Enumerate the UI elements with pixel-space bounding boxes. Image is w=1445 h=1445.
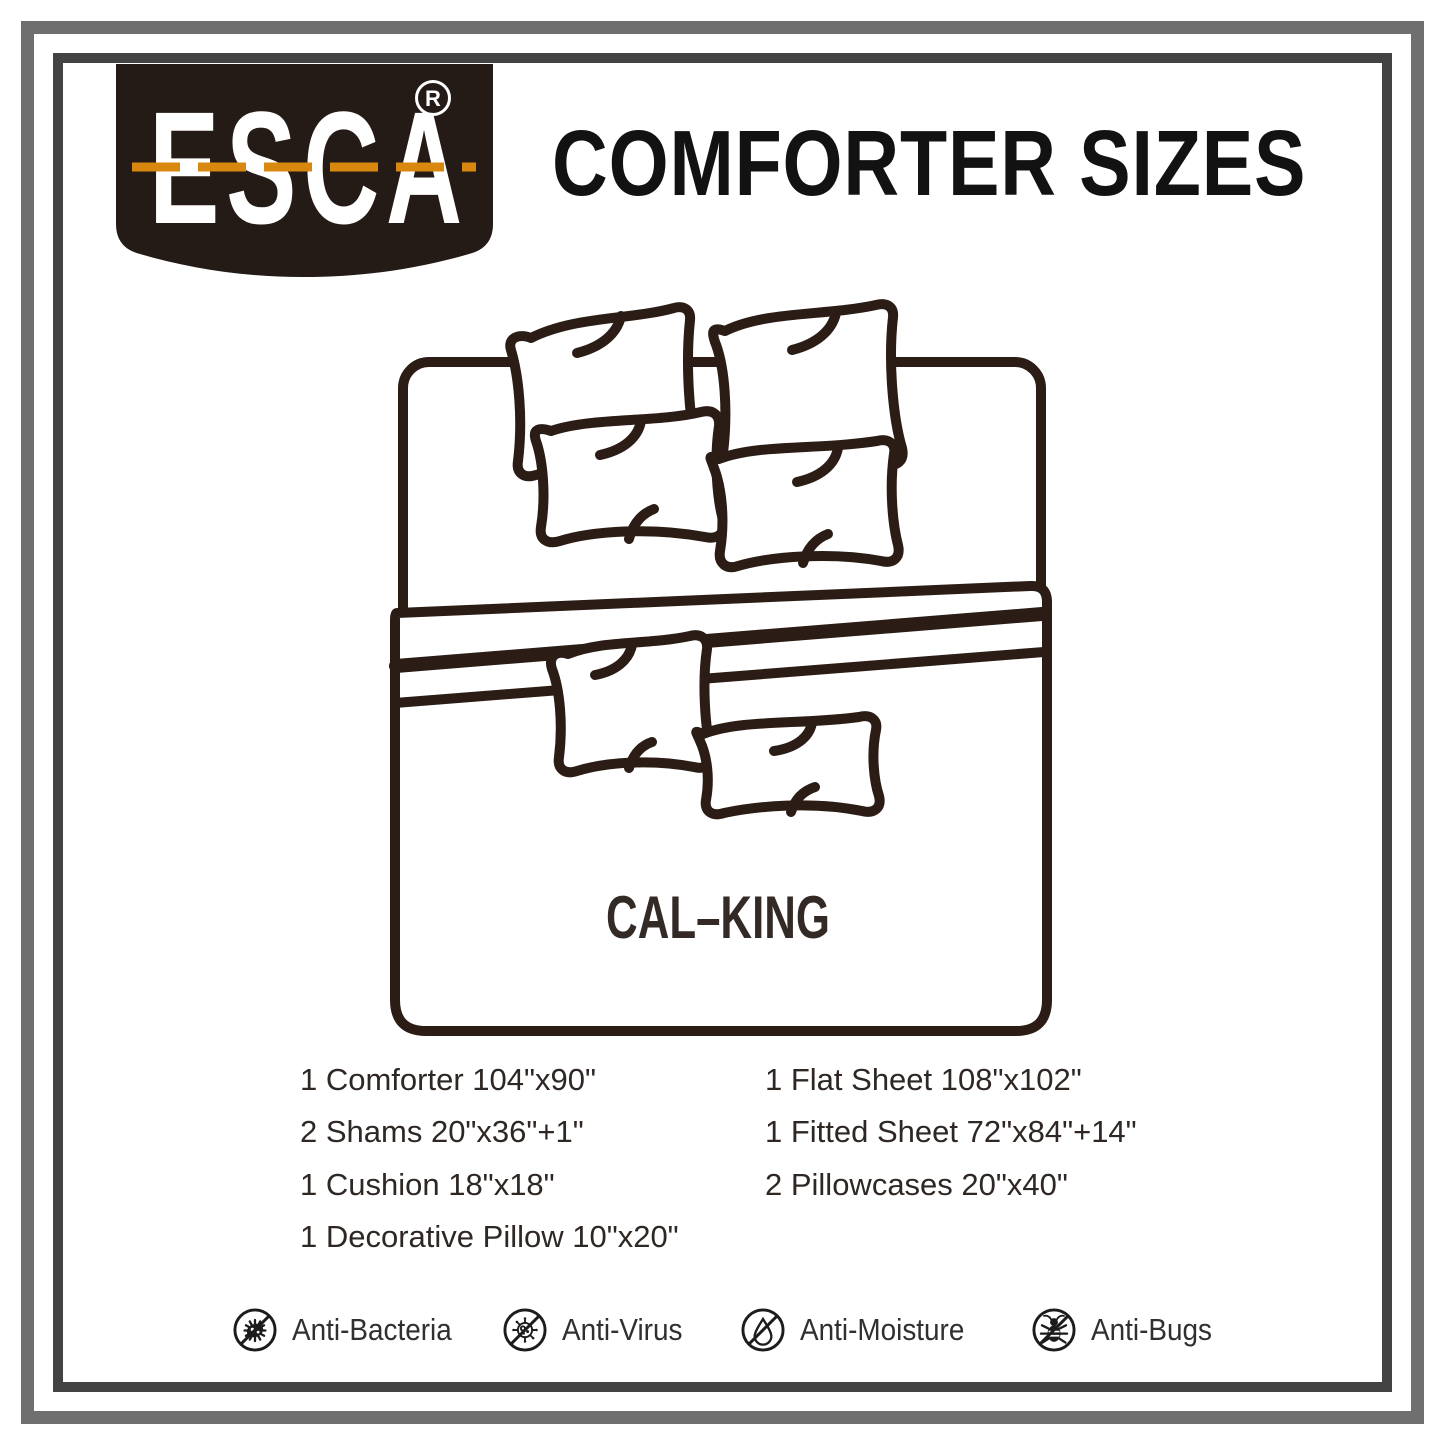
- contents-list-right: 1 Flat Sheet 108"x102" 1 Fitted Sheet 72…: [765, 1064, 1137, 1200]
- svg-text:R: R: [425, 86, 441, 111]
- list-item: 1 Cushion 18"x18": [300, 1169, 679, 1200]
- contents-list-left: 1 Comforter 104"x90" 2 Shams 20"x36"+1" …: [300, 1064, 679, 1252]
- list-item: 1 Decorative Pillow 10"x20": [300, 1221, 679, 1252]
- feature-label: Anti-Virus: [562, 1312, 682, 1348]
- feature-label: Anti-Bugs: [1091, 1312, 1212, 1348]
- comforter-sizes-infographic: ESCA R COMFORTER SIZES: [0, 0, 1445, 1445]
- list-item: 1 Fitted Sheet 72"x84"+14": [765, 1116, 1137, 1147]
- feature-label: Anti-Moisture: [800, 1312, 964, 1348]
- pillow-front-right: [710, 440, 898, 567]
- pillow-front-left: [535, 411, 724, 542]
- feature-anti-virus: Anti-Virus: [502, 1307, 696, 1353]
- cushion-pillow: [551, 635, 712, 772]
- feature-anti-bacteria: Anti-Bacteria: [232, 1307, 469, 1353]
- anti-virus-icon: [502, 1307, 548, 1353]
- feature-row: Anti-Bacteria Anti-Virus: [0, 1307, 1445, 1353]
- decorative-pillow: [696, 716, 879, 814]
- feature-anti-moisture: Anti-Moisture: [740, 1307, 983, 1353]
- anti-moisture-icon: [740, 1307, 786, 1353]
- page-title: COMFORTER SIZES: [552, 117, 1306, 210]
- brand-logo: ESCA R: [116, 64, 493, 280]
- list-item: 1 Comforter 104"x90": [300, 1064, 679, 1095]
- size-label: CAL–KING: [606, 888, 830, 948]
- list-item: 2 Shams 20"x36"+1": [300, 1116, 679, 1147]
- feature-anti-bugs: Anti-Bugs: [1031, 1307, 1225, 1353]
- list-item: 2 Pillowcases 20"x40": [765, 1169, 1137, 1200]
- anti-bacteria-icon: [232, 1307, 278, 1353]
- list-item: 1 Flat Sheet 108"x102": [765, 1064, 1137, 1095]
- feature-label: Anti-Bacteria: [292, 1312, 452, 1348]
- anti-bugs-icon: [1031, 1307, 1077, 1353]
